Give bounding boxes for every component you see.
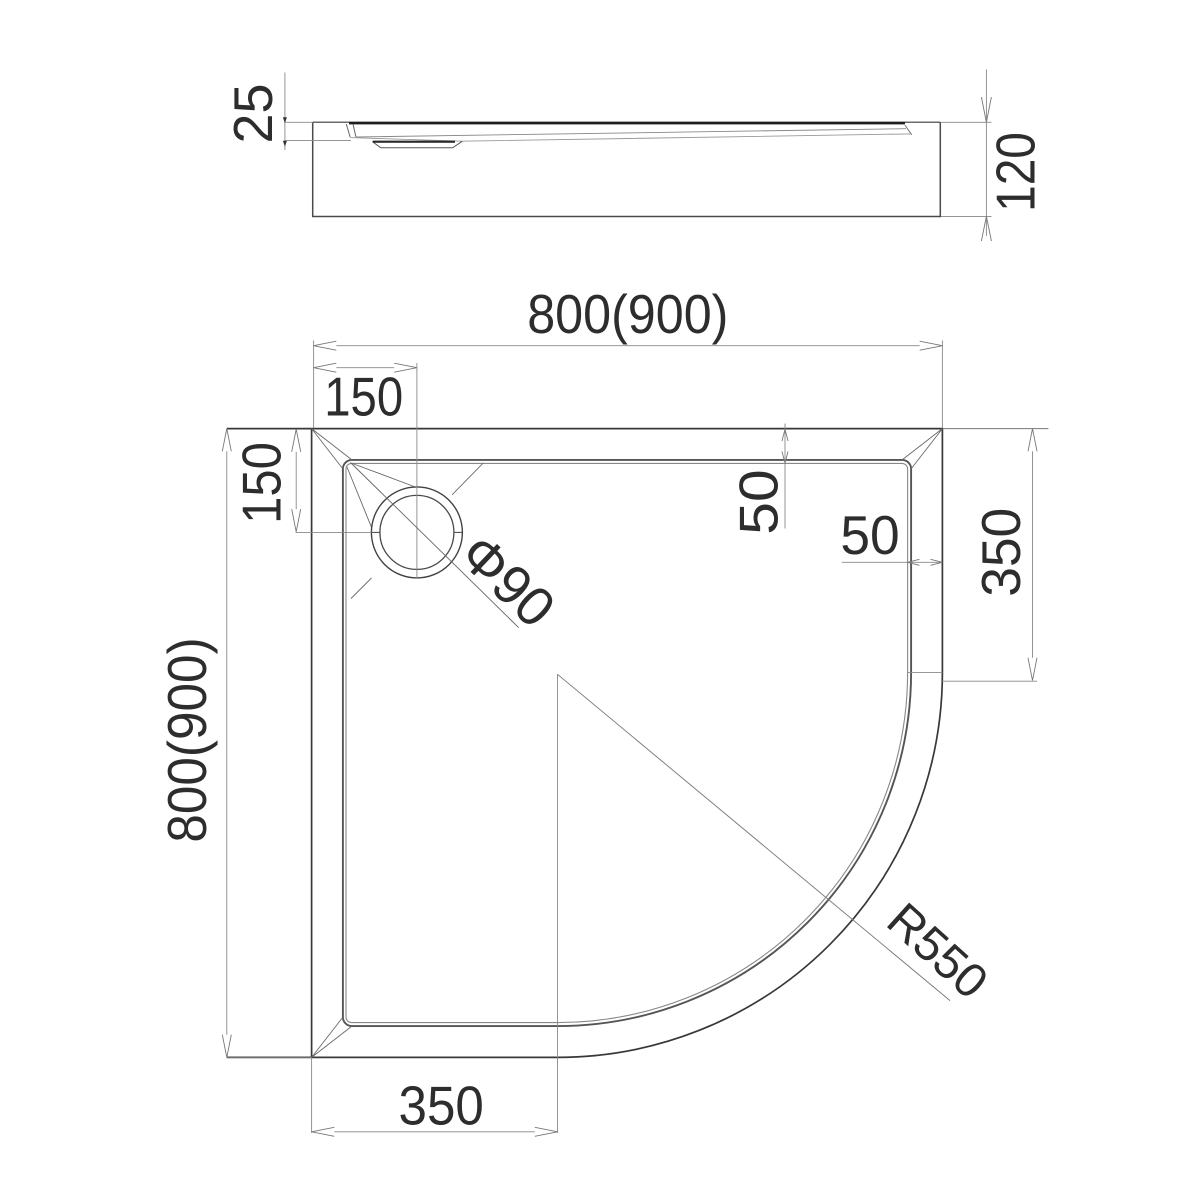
svg-text:120: 120	[984, 132, 1046, 212]
svg-text:350: 350	[399, 1076, 484, 1137]
svg-text:800(900): 800(900)	[157, 637, 218, 842]
svg-text:50: 50	[840, 505, 899, 566]
svg-text:350: 350	[971, 508, 1032, 597]
svg-text:150: 150	[232, 442, 293, 524]
svg-text:150: 150	[324, 366, 403, 427]
svg-text:800(900): 800(900)	[527, 284, 728, 346]
svg-text:25: 25	[223, 84, 285, 144]
svg-text:50: 50	[728, 469, 790, 534]
